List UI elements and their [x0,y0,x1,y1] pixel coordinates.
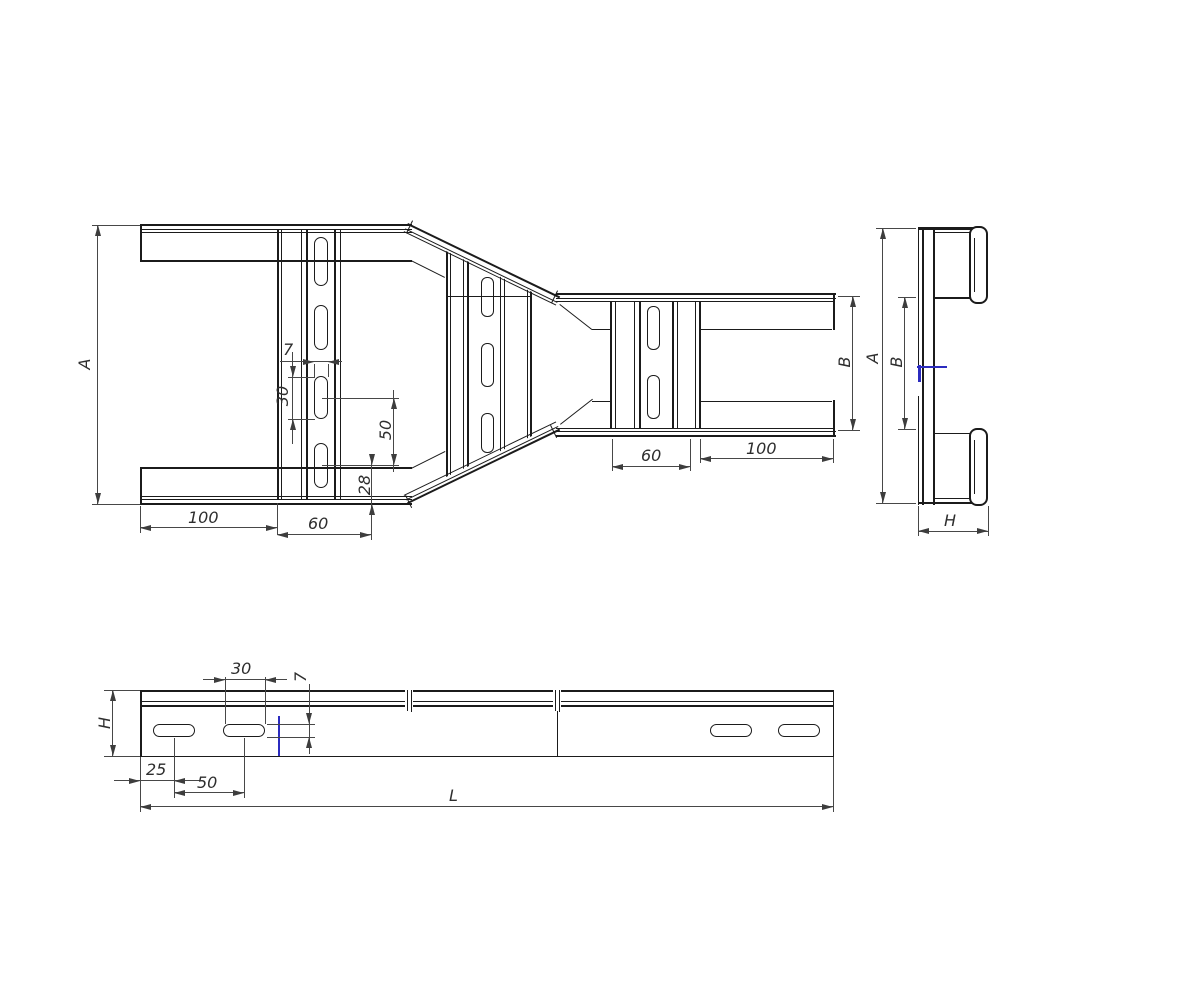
rolled-edge [969,428,988,506]
rung-line [334,230,336,500]
slot-hole [647,306,660,350]
object-line [556,435,836,437]
dim-label-slot-length: 30 [272,385,294,407]
object-line [140,232,412,233]
dim-label-overall-length: L [449,788,458,804]
slot-hole [481,343,494,387]
dim-label-narrow-rung-to-end: 100 [746,441,777,457]
dim-label-slot-pitch: 50 [375,419,397,441]
dim-label-end-inner: B [886,351,908,373]
datum-mark-blue [918,365,921,382]
object-line [140,224,412,226]
object-line [592,329,612,330]
gusset-line [560,399,593,425]
dim-label-end-to-rung: 100 [188,510,219,526]
object-line [556,293,836,295]
rung-line [639,302,641,428]
slot-hole [481,277,494,317]
dim-label-overall-width: A [74,353,96,375]
slot-hole [647,375,660,419]
object-line [556,298,836,299]
dim-label-slot-length-side: 30 [231,661,251,677]
object-line [140,229,412,230]
cad-drawing: A 7 30 50 28 100 [0,0,1200,1000]
dim-label-end-depth: H [944,513,956,529]
object-line [140,467,142,505]
rung-line [610,302,612,428]
gusset-line [411,451,446,469]
gusset-line [559,304,592,330]
slot-hole [314,237,328,286]
object-line [833,400,835,437]
dim-label-narrow-width: B [834,351,856,373]
dim-label-slot-to-edge: 28 [354,474,376,496]
dim-label-slot-height-side: 7 [290,666,312,688]
object-line [140,224,142,262]
rung-line [301,230,302,500]
dim-label-narrow-rung-zone: 60 [641,448,661,464]
rung-line [699,302,701,428]
dim-line [97,225,98,504]
rung-line [306,230,308,500]
rung-line [340,230,341,500]
slot-hole [481,413,494,453]
dim-label-slot-pitch-side: 50 [197,775,217,791]
dim-label-end-overall: A [862,347,884,369]
gusset-line [410,260,445,278]
dim-label-profile-height: H [94,712,116,734]
rung-line [634,302,635,428]
object-line [833,293,835,330]
slot-hole [153,724,195,737]
slot-hole [778,724,820,737]
slot-hole [314,305,328,350]
rung-line [281,230,282,500]
object-line [700,329,832,330]
rung-line [677,302,678,428]
object-line [556,431,836,432]
object-line [140,260,412,262]
dim-label-rung-zone: 60 [308,516,328,532]
slot-hole [223,724,265,737]
datum-mark-blue [917,366,947,368]
rung-line [672,302,674,428]
slot-hole [710,724,752,737]
rolled-edge [969,226,988,304]
object-line [592,401,612,402]
rung-line [277,230,279,500]
object-line [700,401,832,402]
dim-label-end-to-first-slot: 25 [146,762,166,778]
rung-line [615,302,616,428]
rung-line [695,302,696,428]
